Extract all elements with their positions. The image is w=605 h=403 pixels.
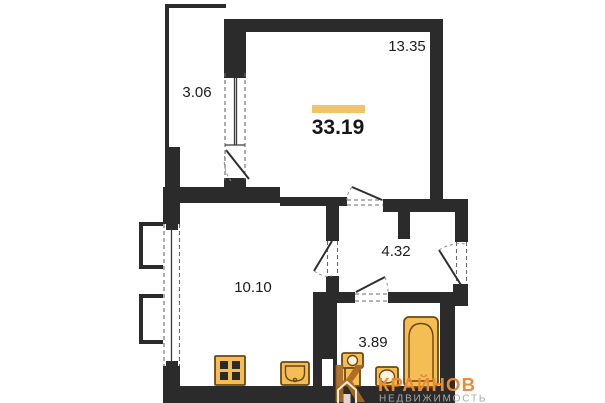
- door-entrance: [439, 242, 467, 285]
- wall-bathroom-top-right: [388, 292, 455, 303]
- door-bathroom: [355, 277, 388, 301]
- total-area-underline: [312, 105, 365, 113]
- brand-house-door-icon: [344, 394, 351, 403]
- wall-window-top-block: [224, 19, 246, 78]
- window-cap-bottom: [166, 361, 178, 370]
- room-label-bathroom: 3.89: [358, 334, 387, 351]
- wall-left-upper: [163, 187, 180, 224]
- wall-kitchen-hall-upper: [326, 199, 339, 241]
- facade-box-upper: [141, 224, 163, 267]
- stove-icon: [215, 356, 245, 385]
- brand-subtitle: НЕДВИЖИМОСТЬ: [379, 394, 487, 403]
- wall-top: [224, 19, 443, 32]
- room-label-hallway: 4.32: [381, 243, 410, 260]
- door-kitchen: [314, 241, 338, 276]
- balcony-outline: [167, 6, 226, 150]
- brand-name: КРАЙНОВ: [378, 374, 476, 395]
- floor-plan-canvas: 3.06 13.35 10.10 4.32 3.89 33.19 К КРАЙН…: [0, 0, 605, 403]
- door-living-room: [347, 187, 383, 205]
- wall-hall-stub: [398, 212, 410, 239]
- kitchen-sink-icon: [281, 362, 309, 385]
- facade-box-lower: [141, 296, 163, 342]
- window-kitchen: [164, 224, 180, 366]
- room-label-living-room: 13.35: [388, 38, 426, 55]
- wall-entrance-lower: [453, 284, 468, 306]
- wall-right-upper: [430, 19, 443, 212]
- wall-bathroom-top-left: [313, 292, 355, 303]
- wall-mid-band-right: [383, 199, 467, 212]
- room-label-kitchen: 10.10: [234, 279, 272, 296]
- floor-plan-svg: 3.06 13.35 10.10 4.32 3.89 33.19 К КРАЙН…: [0, 0, 605, 403]
- total-area-label: 33.19: [312, 116, 365, 139]
- window-cap-top: [166, 221, 178, 230]
- wall-entrance-upper: [455, 199, 468, 242]
- wall-mid-band-left: [163, 187, 280, 203]
- wall-left-lower: [163, 366, 180, 403]
- window-balcony: [225, 73, 245, 180]
- room-label-balcony: 3.06: [182, 84, 211, 101]
